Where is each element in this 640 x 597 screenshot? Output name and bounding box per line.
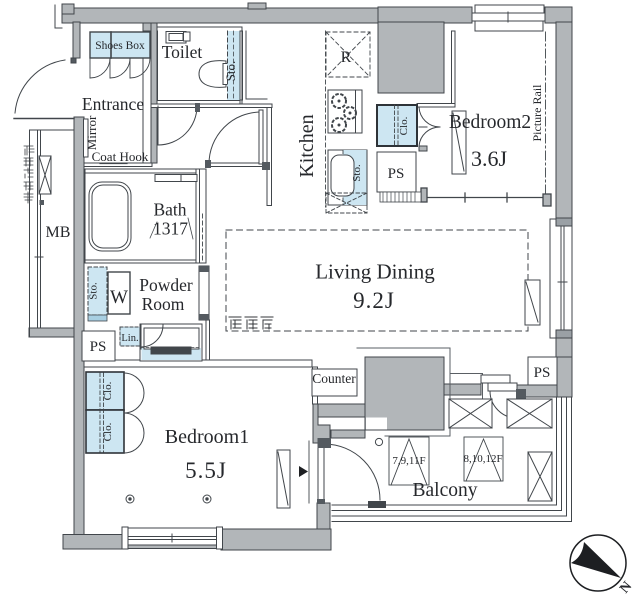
svg-text:PS: PS [90,339,107,355]
svg-text:Bedroom1: Bedroom1 [165,426,249,448]
svg-text:1317: 1317 [153,219,188,239]
svg-text:Lin.: Lin. [121,333,138,344]
svg-text:Room: Room [142,294,185,314]
svg-text:Coat Hook: Coat Hook [92,149,149,164]
svg-text:Bedroom2: Bedroom2 [449,112,531,133]
svg-text:Clo.: Clo. [102,422,114,441]
svg-text:7,9,11F: 7,9,11F [392,455,425,467]
svg-text:R: R [341,49,352,66]
svg-text:Toilet: Toilet [162,42,203,62]
svg-text:Bath: Bath [153,200,186,220]
svg-text:W: W [110,287,128,308]
svg-text:Kitchen: Kitchen [296,114,318,177]
svg-text:Sto.: Sto. [223,61,238,82]
svg-text:Powder: Powder [139,275,193,295]
svg-text:Living Dining: Living Dining [315,260,435,284]
svg-text:Clo.: Clo. [398,116,410,135]
svg-text:Entrance: Entrance [82,94,144,114]
svg-text:PS: PS [388,166,405,182]
svg-text:8,10,12F: 8,10,12F [463,453,502,465]
svg-text:Sto.: Sto. [88,282,100,300]
svg-text:Counter: Counter [312,371,356,386]
svg-text:Mirror: Mirror [84,115,99,150]
svg-text:Balcony: Balcony [413,480,478,501]
svg-text:Shoes Box: Shoes Box [95,40,145,52]
svg-text:MB: MB [46,224,71,241]
svg-text:Sto.: Sto. [351,164,363,182]
svg-text:3.6J: 3.6J [471,146,508,171]
svg-text:5.5J: 5.5J [185,458,227,483]
svg-text:9.2J: 9.2J [353,288,395,313]
svg-text:Picture Rail: Picture Rail [530,84,544,142]
svg-text:PS: PS [534,365,551,381]
